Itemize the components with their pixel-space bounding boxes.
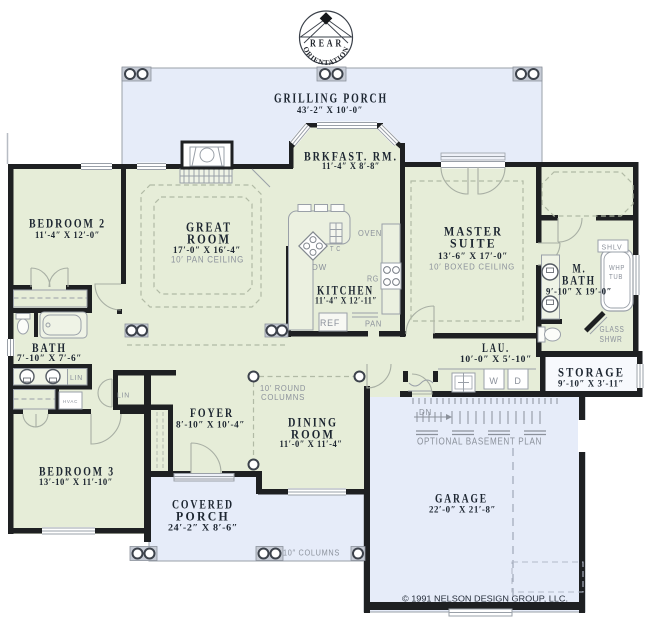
svg-text:HVAC: HVAC [63, 399, 78, 404]
svg-text:11′-4″ X 8′-8″: 11′-4″ X 8′-8″ [322, 162, 380, 172]
svg-text:TUB: TUB [609, 272, 623, 281]
svg-text:LAU.: LAU. [482, 341, 510, 355]
svg-text:9′-10″ X 19′-0″: 9′-10″ X 19′-0″ [546, 288, 612, 298]
svg-text:DW: DW [312, 262, 327, 272]
svg-text:43′-2″ X 10′-0″: 43′-2″ X 10′-0″ [297, 106, 363, 116]
svg-text:DN: DN [419, 408, 432, 417]
svg-text:REF: REF [320, 318, 340, 328]
svg-text:LIN: LIN [117, 391, 130, 400]
svg-text:FOYER: FOYER [190, 405, 234, 420]
svg-text:COLUMNS: COLUMNS [261, 392, 305, 402]
svg-text:11′-0″ X 11′-4″: 11′-0″ X 11′-4″ [280, 440, 343, 450]
svg-text:ROOM: ROOM [187, 232, 231, 247]
svg-text:10″ COLUMNS: 10″ COLUMNS [283, 548, 340, 558]
svg-text:GRILLING PORCH: GRILLING PORCH [274, 91, 388, 106]
svg-text:OPTIONAL BASEMENT PLAN: OPTIONAL BASEMENT PLAN [417, 437, 542, 448]
svg-text:BATH: BATH [32, 341, 67, 355]
svg-text:BEDROOM 2: BEDROOM 2 [29, 216, 106, 231]
svg-text:22′-0″ X 21′-8″: 22′-0″ X 21′-8″ [429, 506, 496, 516]
svg-text:PORCH: PORCH [176, 509, 230, 524]
svg-text:GLASS: GLASS [600, 325, 625, 334]
svg-text:10′-0″ X 5′-10″: 10′-0″ X 5′-10″ [460, 355, 532, 365]
svg-text:24′-2″ X 8′-6″: 24′-2″ X 8′-6″ [168, 524, 238, 534]
svg-text:BATH: BATH [562, 274, 596, 288]
svg-text:10′ PAN CEILING: 10′ PAN CEILING [171, 255, 244, 265]
svg-text:STORAGE: STORAGE [558, 365, 625, 380]
svg-text:OVEN: OVEN [358, 228, 382, 238]
svg-text:10′ BOXED CEILING: 10′ BOXED CEILING [429, 262, 515, 272]
svg-text:7′-10″ X 7′-6″: 7′-10″ X 7′-6″ [17, 354, 82, 364]
svg-text:SHLV: SHLV [602, 245, 623, 252]
svg-text:8′-10″ X 10′-4″: 8′-10″ X 10′-4″ [176, 421, 245, 431]
svg-text:GARAGE: GARAGE [435, 491, 488, 506]
svg-text:D: D [514, 376, 521, 386]
svg-text:BEDROOM 3: BEDROOM 3 [39, 464, 115, 479]
svg-text:REAR: REAR [310, 39, 344, 50]
svg-text:13′-10″ X 11′-10″: 13′-10″ X 11′-10″ [39, 478, 113, 488]
svg-text:11′-4″ X 12′-0″: 11′-4″ X 12′-0″ [35, 231, 100, 241]
svg-text:11′-4″ X 12′-11″: 11′-4″ X 12′-11″ [315, 297, 377, 307]
svg-text:KITCHEN: KITCHEN [317, 283, 374, 298]
svg-text:9′-10″ X 3′-11″: 9′-10″ X 3′-11″ [558, 380, 624, 390]
svg-text:PAN: PAN [365, 319, 382, 329]
svg-text:W: W [489, 376, 498, 386]
svg-text:T C: T C [330, 244, 341, 253]
svg-text:SHWR: SHWR [600, 335, 623, 344]
svg-text:WHP: WHP [609, 263, 625, 272]
svg-text:13′-6″ X 17′-0″: 13′-6″ X 17′-0″ [438, 252, 508, 262]
svg-text:LIN: LIN [70, 373, 83, 382]
svg-text:© 1991 NELSON DESIGN GROUP, LL: © 1991 NELSON DESIGN GROUP, LLC. [402, 594, 568, 604]
svg-text:SUITE: SUITE [450, 236, 497, 251]
svg-text:RG: RG [367, 274, 379, 284]
